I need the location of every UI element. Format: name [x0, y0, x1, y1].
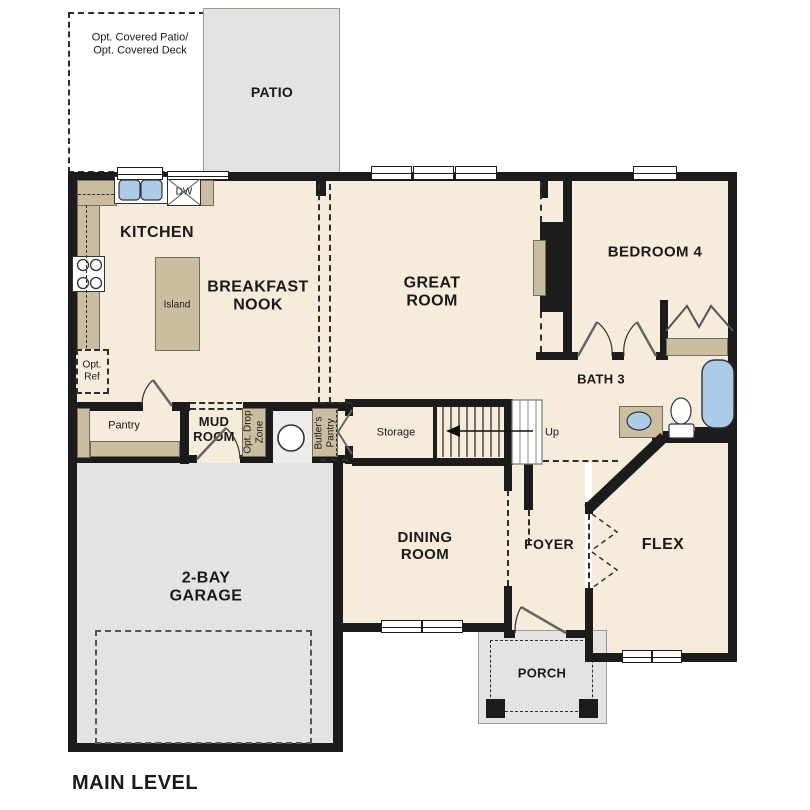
pantry-shelf-left	[77, 408, 90, 458]
greatroom-dash-bottom	[540, 312, 542, 352]
greatroom-dash-top	[540, 182, 542, 222]
bedroom4-label: BEDROOM 4	[608, 243, 702, 260]
pantry-label: Pantry	[108, 420, 140, 433]
mud-room-label: MUD ROOM	[193, 415, 235, 445]
breakfast-nook-label: BREAKFAST NOOK	[207, 279, 308, 316]
wall-stairs-right	[504, 399, 513, 465]
counter-left-upper	[77, 205, 100, 259]
porch-post-right	[579, 699, 598, 718]
wall-storage-left-bottom	[345, 446, 353, 464]
porch-label: PORCH	[518, 667, 566, 682]
counter-left-lower	[77, 290, 100, 352]
wall-garage-right	[333, 460, 343, 752]
kitchen-label: KITCHEN	[120, 224, 194, 242]
water-heater-label: WH	[283, 432, 300, 444]
greatroom-window-2	[413, 166, 454, 180]
cabinet-dash-top	[78, 194, 114, 195]
wall-bedroom-left-top	[563, 172, 572, 224]
sink-counter	[114, 176, 168, 204]
dining-foyer-opening-dash	[507, 490, 509, 586]
cabinet-dash-left	[86, 205, 87, 348]
flex-window-1	[622, 650, 652, 663]
storage-label: Storage	[377, 427, 416, 440]
porch-post-left	[486, 699, 505, 718]
kitchen-window	[117, 167, 163, 180]
wall-foyer-left-stub-bottom	[504, 586, 512, 634]
opt-ref-label: Opt. Ref	[83, 360, 102, 383]
greatroom-window-3	[455, 166, 497, 180]
opt-covered-patio-label: Opt. Covered Patio/ Opt. Covered Deck	[92, 31, 189, 56]
floor-plan: Opt. Covered Patio/ Opt. Covered Deck PA…	[0, 0, 810, 810]
nook-separator-dash-1	[318, 184, 320, 403]
pantry-shelf-bottom	[90, 441, 180, 457]
bedroom4-window	[633, 166, 677, 180]
garage-label: 2-BAY GARAGE	[170, 570, 243, 607]
mudroom-opening-dash-1	[190, 402, 242, 404]
wall-stairs-bottom	[352, 458, 512, 466]
dishwasher-label: DW	[175, 186, 194, 198]
overhang-dash	[543, 460, 618, 462]
nook-separator-dash-2	[329, 184, 331, 403]
flex-window-2	[652, 650, 682, 663]
greatroom-window-1	[371, 166, 412, 180]
flex-doors-opening-dash	[588, 514, 590, 588]
flex-label: FLEX	[642, 536, 685, 554]
wall-understair	[524, 460, 533, 510]
drop-zone-label: Opt. Drop Zone	[243, 410, 266, 453]
understair-dash	[528, 510, 530, 544]
foyer-label: FOYER	[524, 536, 574, 552]
counter-top-right	[200, 180, 214, 206]
wall-flex-right	[728, 437, 737, 662]
wall-flex-left-stub-top	[585, 502, 593, 514]
garage-door-outline	[95, 630, 312, 744]
wall-wh-left	[265, 408, 273, 463]
patio-slider-door	[167, 171, 229, 180]
wall-hall-top-2	[612, 352, 624, 360]
wall-bedroom-left-bottom	[563, 310, 572, 356]
bath-vanity	[619, 406, 663, 438]
closet-shelf	[666, 338, 728, 356]
island-label: Island	[164, 299, 191, 311]
patio-label: PATIO	[251, 84, 293, 100]
dining-window-1	[381, 620, 422, 633]
wall-storage-left-top	[345, 402, 353, 416]
great-room-label: GREAT ROOM	[404, 275, 461, 312]
wall-right-upper	[728, 172, 737, 444]
butlers-pantry-label: Butler's Pantry	[314, 416, 337, 449]
dining-window-2	[422, 620, 463, 633]
bath3-label: BATH 3	[577, 373, 625, 388]
nook-hall-dash-bottom	[320, 459, 348, 461]
wall-flex-left-stub-bottom	[585, 588, 593, 655]
dining-room-label: DINING ROOM	[398, 529, 453, 564]
wall-storage-stairs-divider	[433, 406, 437, 458]
nook-hall-dash-top	[320, 402, 352, 404]
plan-title: MAIN LEVEL	[72, 772, 198, 795]
counter-top-corner	[77, 180, 117, 206]
media-niche-shelf	[533, 240, 546, 296]
wall-bath-bottom	[695, 427, 737, 439]
wall-foyer-left-stub-top	[504, 465, 512, 491]
wall-stairs-top	[345, 399, 512, 407]
wall-hall-top-1	[536, 352, 578, 360]
wall-garage-bottom	[68, 743, 342, 752]
up-label: Up	[545, 427, 559, 440]
wall-foyer-bottom-left	[504, 630, 515, 638]
stove	[72, 256, 105, 292]
mudroom-opening-dash-2	[190, 408, 242, 410]
butlers-pantry-dash	[336, 410, 337, 456]
